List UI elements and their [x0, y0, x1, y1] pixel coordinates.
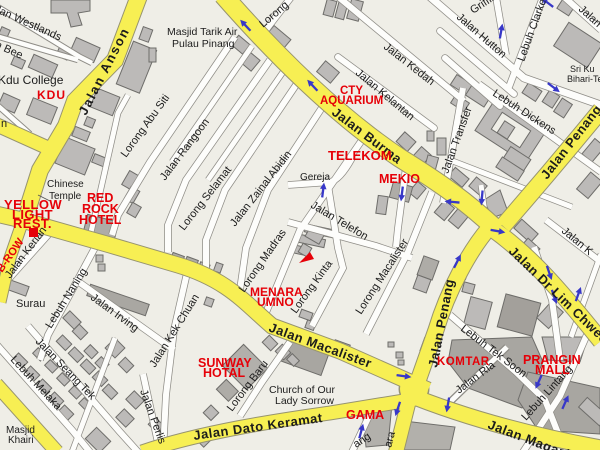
svg-text:Masjid Tarik Air: Masjid Tarik Air [167, 26, 238, 38]
svg-text:HOTEL: HOTEL [79, 213, 122, 227]
svg-text:Sri Ku: Sri Ku [570, 64, 595, 74]
svg-text:Bihari-Te: Bihari-Te [567, 74, 600, 84]
svg-text:UMNO: UMNO [257, 295, 294, 309]
svg-text:Surau: Surau [16, 298, 45, 310]
svg-text:AQUARIUM: AQUARIUM [320, 95, 383, 107]
svg-text:KOMTAR: KOMTAR [437, 356, 490, 368]
svg-text:Khairi: Khairi [8, 435, 34, 446]
svg-text:GAMA: GAMA [346, 408, 384, 422]
svg-text:MEKIO: MEKIO [379, 172, 420, 186]
svg-text:n: n [1, 118, 7, 130]
svg-text:TELEKOM: TELEKOM [328, 148, 392, 163]
svg-text:MALL: MALL [535, 363, 570, 377]
svg-text:Chinese: Chinese [47, 179, 84, 190]
svg-text:Lady Sorrow: Lady Sorrow [275, 395, 334, 407]
svg-text:Pulau Pinang: Pulau Pinang [172, 38, 235, 50]
svg-text:KDU: KDU [37, 88, 66, 102]
svg-text:HOTAL: HOTAL [203, 366, 245, 380]
svg-text:Kdu College: Kdu College [0, 73, 64, 87]
svg-text:Gereja: Gereja [300, 172, 330, 183]
